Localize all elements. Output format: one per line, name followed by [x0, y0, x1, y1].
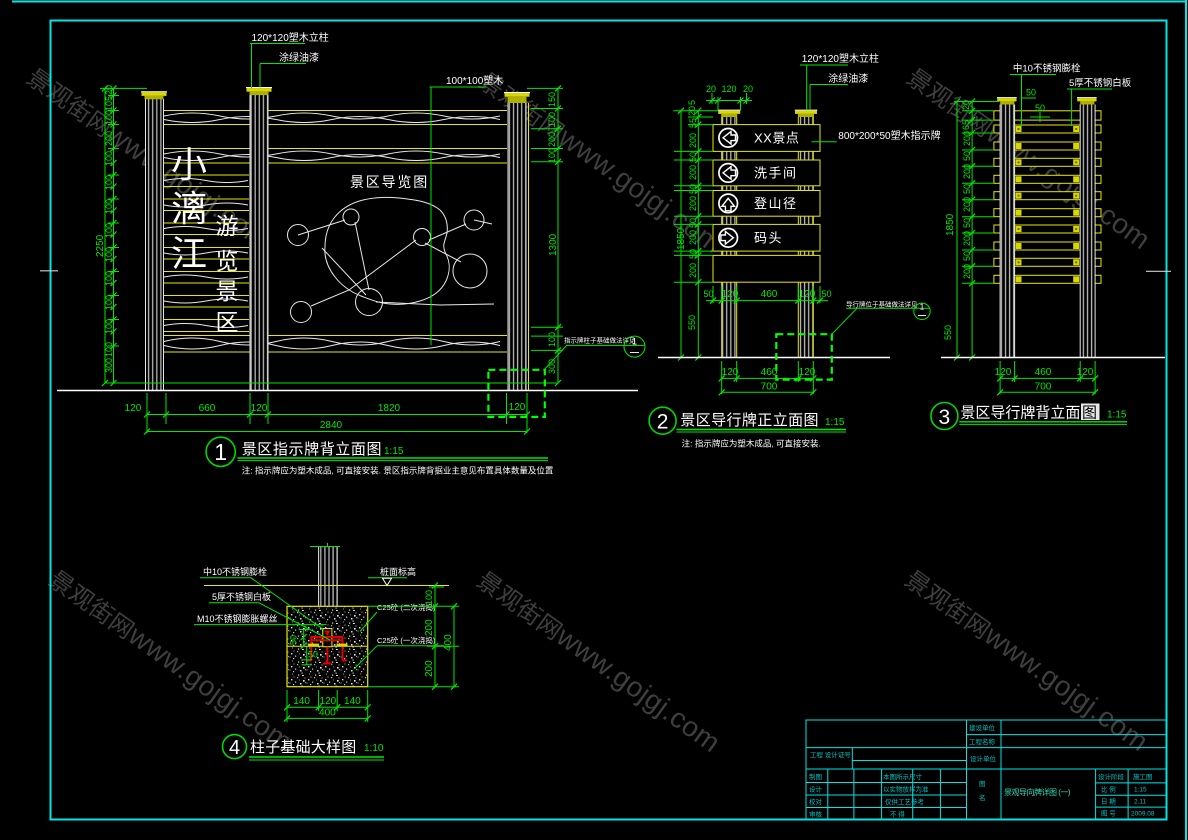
- svg-text:120: 120: [799, 367, 816, 378]
- svg-text:漓: 漓: [171, 188, 207, 229]
- svg-text:120: 120: [721, 84, 736, 94]
- svg-text:200: 200: [688, 263, 698, 278]
- svg-text:不 得: 不 得: [890, 810, 905, 819]
- svg-text:120: 120: [995, 367, 1012, 378]
- svg-text:50: 50: [821, 289, 831, 299]
- svg-text:120: 120: [320, 696, 337, 707]
- svg-text:50: 50: [289, 635, 299, 645]
- svg-text:5厚不锈钢白板: 5厚不锈钢白板: [212, 591, 271, 602]
- svg-text:200: 200: [962, 197, 972, 212]
- svg-text:注: 指示牌应为塑木成品, 可直接安装. 景区指示牌背据业主: 注: 指示牌应为塑木成品, 可直接安装. 景区指示牌背据业主意见布置具体数量及位…: [242, 466, 554, 476]
- svg-text:以实物放样为准: 以实物放样为准: [883, 785, 929, 794]
- svg-text:100: 100: [424, 590, 434, 605]
- svg-text:100: 100: [104, 247, 114, 262]
- svg-text:50: 50: [1026, 88, 1036, 98]
- svg-text:400: 400: [319, 708, 336, 719]
- svg-text:460: 460: [1035, 367, 1052, 378]
- svg-text:4: 4: [229, 737, 240, 759]
- svg-text:50: 50: [308, 650, 318, 660]
- svg-text:景: 景: [216, 278, 239, 304]
- svg-text:本图所示尺寸: 本图所示尺寸: [883, 772, 923, 781]
- svg-text:1820: 1820: [378, 403, 401, 414]
- svg-text:300: 300: [104, 358, 114, 373]
- svg-text:460: 460: [761, 367, 778, 378]
- svg-text:1850: 1850: [945, 213, 956, 236]
- svg-text:200: 200: [962, 264, 972, 279]
- svg-text:涂绿油漆: 涂绿油漆: [279, 51, 319, 64]
- svg-text:200: 200: [688, 196, 698, 211]
- svg-text:800*200*50塑木指示牌: 800*200*50塑木指示牌: [838, 129, 940, 142]
- svg-text:100: 100: [104, 295, 114, 310]
- svg-text:50: 50: [1035, 103, 1045, 113]
- svg-text:200: 200: [962, 231, 972, 246]
- svg-text:100: 100: [104, 342, 114, 357]
- svg-text:200: 200: [547, 132, 557, 147]
- svg-text:登山径: 登山径: [754, 196, 798, 211]
- svg-text:50: 50: [688, 249, 698, 259]
- svg-text:施工图: 施工图: [1133, 772, 1153, 781]
- svg-text:120: 120: [722, 289, 739, 300]
- svg-text:100*100塑木: 100*100塑木: [446, 75, 503, 87]
- svg-text:100: 100: [547, 148, 557, 163]
- svg-text:120: 120: [125, 403, 142, 414]
- svg-text:工程 设计证号: 工程 设计证号: [810, 750, 851, 759]
- svg-text:1:15: 1:15: [1107, 410, 1127, 421]
- svg-text:名: 名: [979, 793, 986, 802]
- svg-text:校对: 校对: [809, 797, 823, 806]
- svg-text:2.11: 2.11: [1134, 799, 1147, 806]
- svg-text:200: 200: [424, 619, 435, 636]
- svg-text:景区指示牌背立面图: 景区指示牌背立面图: [242, 441, 382, 458]
- svg-text:200: 200: [962, 131, 972, 146]
- svg-text:55: 55: [688, 118, 698, 128]
- svg-text:120*120塑木立柱: 120*120塑木立柱: [802, 52, 879, 65]
- svg-text:指示牌柱子基础做法详见: 指示牌柱子基础做法详见: [564, 336, 636, 345]
- svg-text:游: 游: [216, 213, 239, 239]
- svg-text:200: 200: [424, 660, 435, 677]
- svg-text:工程名称: 工程名称: [969, 737, 996, 746]
- svg-text:120: 120: [1077, 367, 1094, 378]
- svg-text:设计阶段: 设计阶段: [1098, 772, 1125, 781]
- svg-text:120: 120: [722, 367, 739, 378]
- svg-text:65: 65: [961, 120, 971, 130]
- svg-text:200: 200: [688, 165, 698, 180]
- svg-text:2840: 2840: [320, 420, 343, 431]
- svg-text:100: 100: [104, 151, 114, 166]
- svg-text:200: 200: [688, 133, 698, 148]
- svg-text:105: 105: [104, 96, 114, 111]
- svg-text:200: 200: [962, 164, 972, 179]
- svg-text:140: 140: [293, 696, 310, 707]
- svg-text:制图: 制图: [809, 772, 822, 781]
- svg-text:20: 20: [706, 84, 716, 94]
- svg-text:桩面标高: 桩面标高: [380, 566, 416, 577]
- svg-text:50: 50: [688, 152, 698, 162]
- svg-text:50: 50: [688, 218, 698, 228]
- svg-text:区: 区: [216, 309, 239, 335]
- svg-text:120: 120: [509, 402, 526, 413]
- svg-text:100: 100: [547, 112, 557, 127]
- svg-text:100: 100: [547, 332, 557, 347]
- svg-text:景区导览图: 景区导览图: [350, 174, 429, 190]
- svg-text:1:15: 1:15: [384, 446, 404, 457]
- svg-text:100: 100: [104, 199, 114, 214]
- svg-text:洗手间: 洗手间: [754, 166, 798, 181]
- svg-text:M10不锈钢膨胀螺丝: M10不锈钢膨胀螺丝: [197, 613, 278, 624]
- svg-text:中10不锈钢膨栓: 中10不锈钢膨栓: [203, 566, 267, 577]
- svg-text:140: 140: [344, 696, 361, 707]
- svg-text:550: 550: [687, 315, 697, 330]
- svg-text:江: 江: [171, 233, 207, 274]
- svg-text:200: 200: [104, 131, 114, 146]
- svg-text:5: 5: [687, 100, 697, 105]
- svg-text:20: 20: [687, 106, 697, 116]
- svg-text:120*120塑木立柱: 120*120塑木立柱: [252, 31, 329, 44]
- svg-text:审核: 审核: [809, 810, 823, 819]
- svg-text:图: 图: [1082, 405, 1097, 422]
- svg-text:700: 700: [761, 382, 778, 393]
- svg-text:50: 50: [703, 289, 713, 299]
- svg-text:1300: 1300: [548, 233, 559, 256]
- svg-text:景区导行牌正立面图: 景区导行牌正立面图: [680, 412, 819, 429]
- svg-text:700: 700: [1035, 382, 1052, 393]
- svg-text:XX景点: XX景点: [754, 131, 799, 146]
- svg-text:100: 100: [104, 271, 114, 286]
- svg-text:2009.08: 2009.08: [1131, 811, 1155, 818]
- svg-text:柱子基础大样图: 柱子基础大样图: [250, 739, 356, 756]
- svg-text:460: 460: [761, 289, 778, 300]
- svg-text:涂绿油漆: 涂绿油漆: [828, 72, 868, 85]
- svg-text:中10不锈钢膨栓: 中10不锈钢膨栓: [1013, 63, 1081, 75]
- svg-text:图: 图: [979, 780, 986, 788]
- svg-text:建设单位: 建设单位: [969, 723, 996, 732]
- svg-text:150: 150: [547, 92, 557, 107]
- svg-text:1:10: 1:10: [364, 743, 384, 754]
- svg-text:100: 100: [104, 175, 114, 190]
- svg-text:50: 50: [962, 184, 972, 194]
- svg-text:550: 550: [943, 325, 953, 340]
- svg-text:120: 120: [799, 289, 816, 300]
- svg-text:注: 指示牌应为塑木成品, 可直接安装.: 注: 指示牌应为塑木成品, 可直接安装.: [682, 439, 821, 449]
- svg-text:50: 50: [688, 184, 698, 194]
- svg-text:400: 400: [443, 634, 454, 651]
- svg-text:日 期: 日 期: [1101, 798, 1116, 806]
- svg-text:20: 20: [743, 84, 753, 94]
- svg-text:览: 览: [216, 248, 239, 274]
- svg-text:5厚不锈钢白板: 5厚不锈钢白板: [1069, 77, 1132, 89]
- svg-text:100: 100: [104, 319, 114, 334]
- svg-text:1:15: 1:15: [1134, 787, 1147, 794]
- svg-text:比 例: 比 例: [1101, 785, 1116, 794]
- svg-text:50: 50: [962, 251, 972, 261]
- svg-text:设计: 设计: [809, 785, 823, 794]
- svg-text:50: 50: [962, 151, 972, 161]
- svg-text:20: 20: [104, 85, 114, 95]
- svg-text:100: 100: [104, 110, 114, 125]
- svg-text:50: 50: [962, 218, 972, 228]
- svg-text:2: 2: [657, 411, 669, 434]
- svg-text:1: 1: [214, 439, 227, 465]
- svg-text:设计单位: 设计单位: [970, 754, 997, 763]
- svg-text:1:15: 1:15: [825, 417, 845, 428]
- svg-text:景区导行牌背立面: 景区导行牌背立面: [960, 405, 1080, 422]
- svg-text:图 号: 图 号: [1101, 810, 1116, 818]
- svg-text:导行牌位于基础做法详见: 导行牌位于基础做法详见: [846, 300, 918, 309]
- svg-text:100: 100: [104, 223, 114, 238]
- svg-text:1: 1: [632, 337, 637, 347]
- svg-text:3: 3: [939, 406, 951, 429]
- svg-text:20: 20: [961, 100, 971, 110]
- svg-text:120: 120: [251, 403, 268, 414]
- svg-text:200: 200: [688, 230, 698, 245]
- svg-text:660: 660: [199, 403, 216, 414]
- svg-text:仅供工艺参考: 仅供工艺参考: [885, 797, 925, 806]
- svg-text:小: 小: [171, 144, 207, 185]
- svg-text:景观导向牌详图 (一): 景观导向牌详图 (一): [1004, 787, 1071, 797]
- svg-text:码头: 码头: [754, 231, 783, 246]
- svg-text:1: 1: [920, 302, 925, 312]
